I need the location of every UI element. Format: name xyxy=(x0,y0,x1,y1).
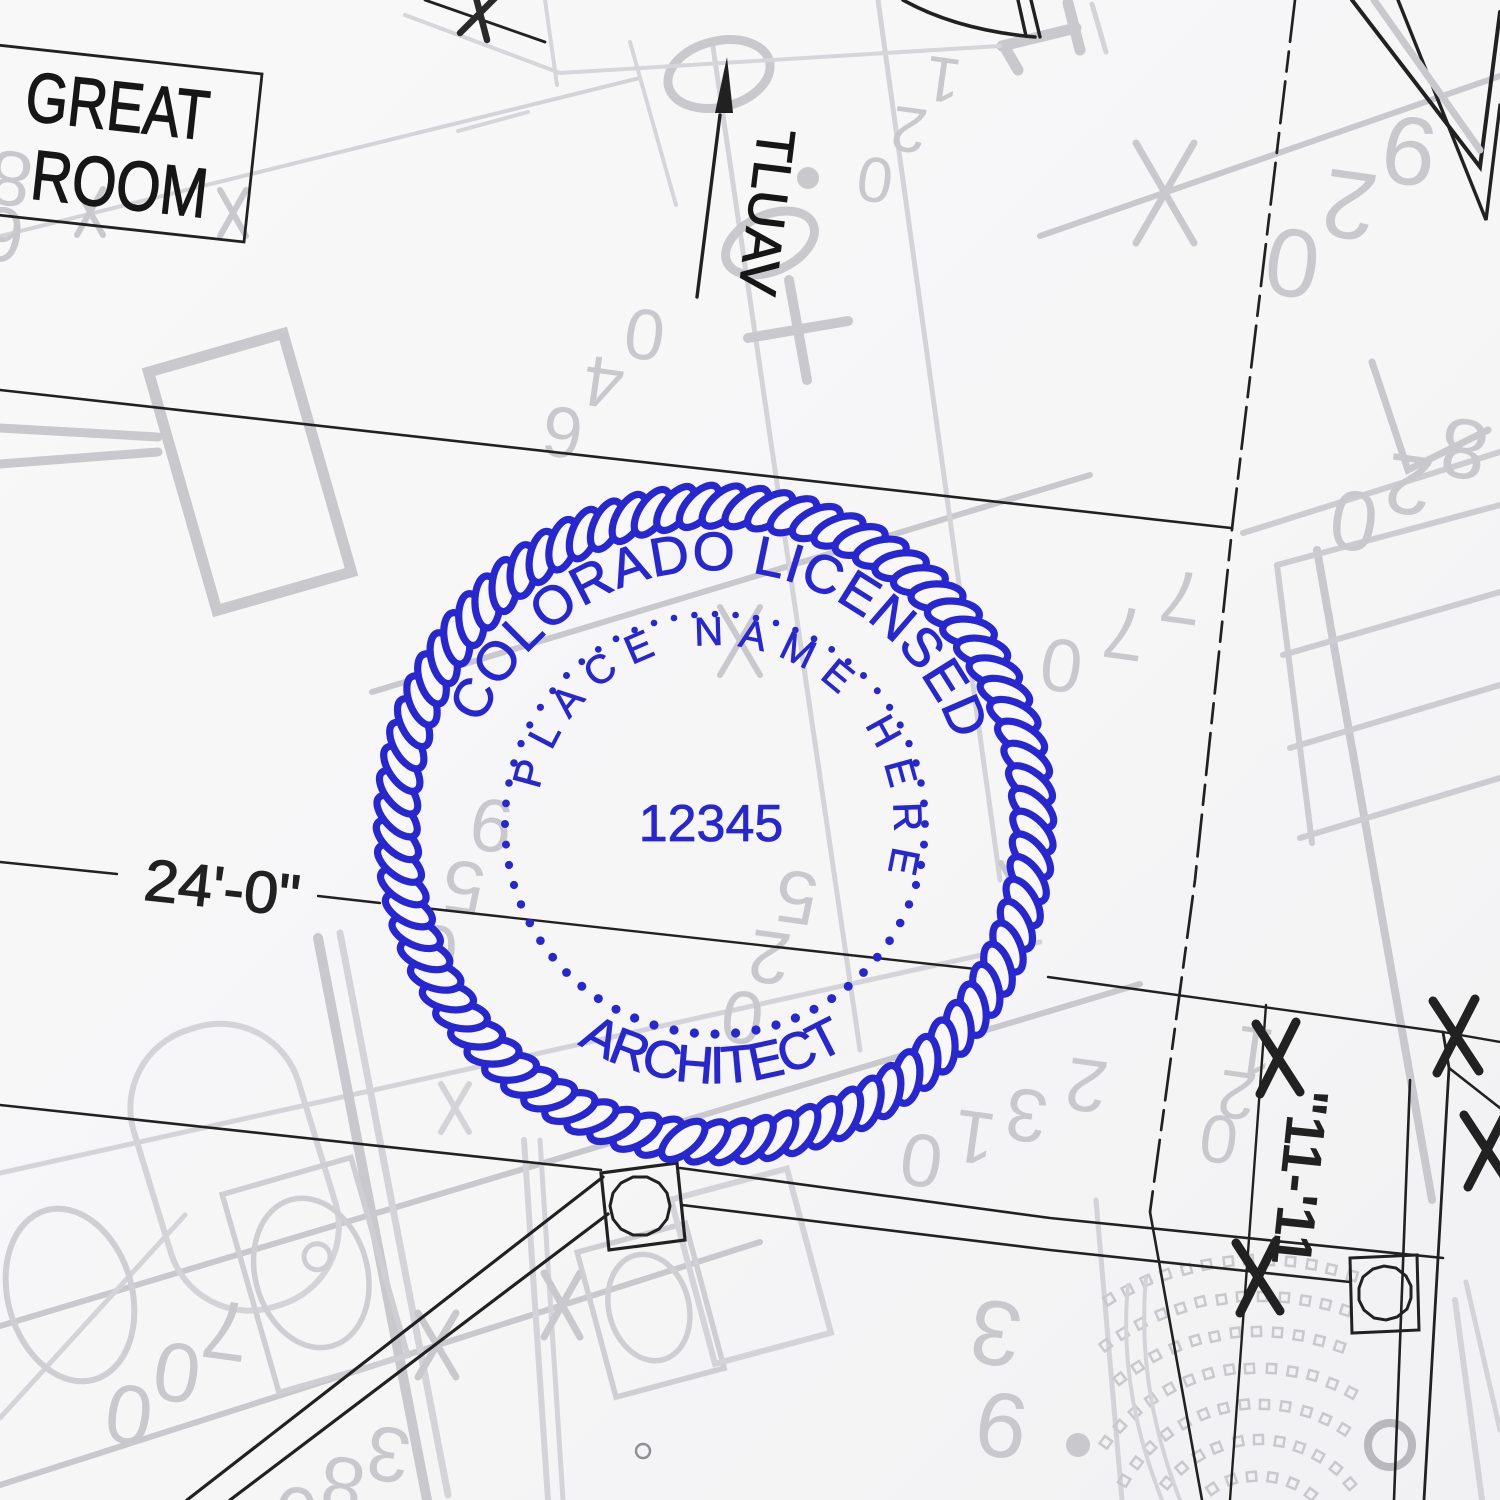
svg-text:12345: 12345 xyxy=(639,795,784,853)
svg-text:R: R xyxy=(884,802,929,833)
svg-text:N: N xyxy=(694,610,724,655)
svg-text:O: O xyxy=(692,522,734,582)
